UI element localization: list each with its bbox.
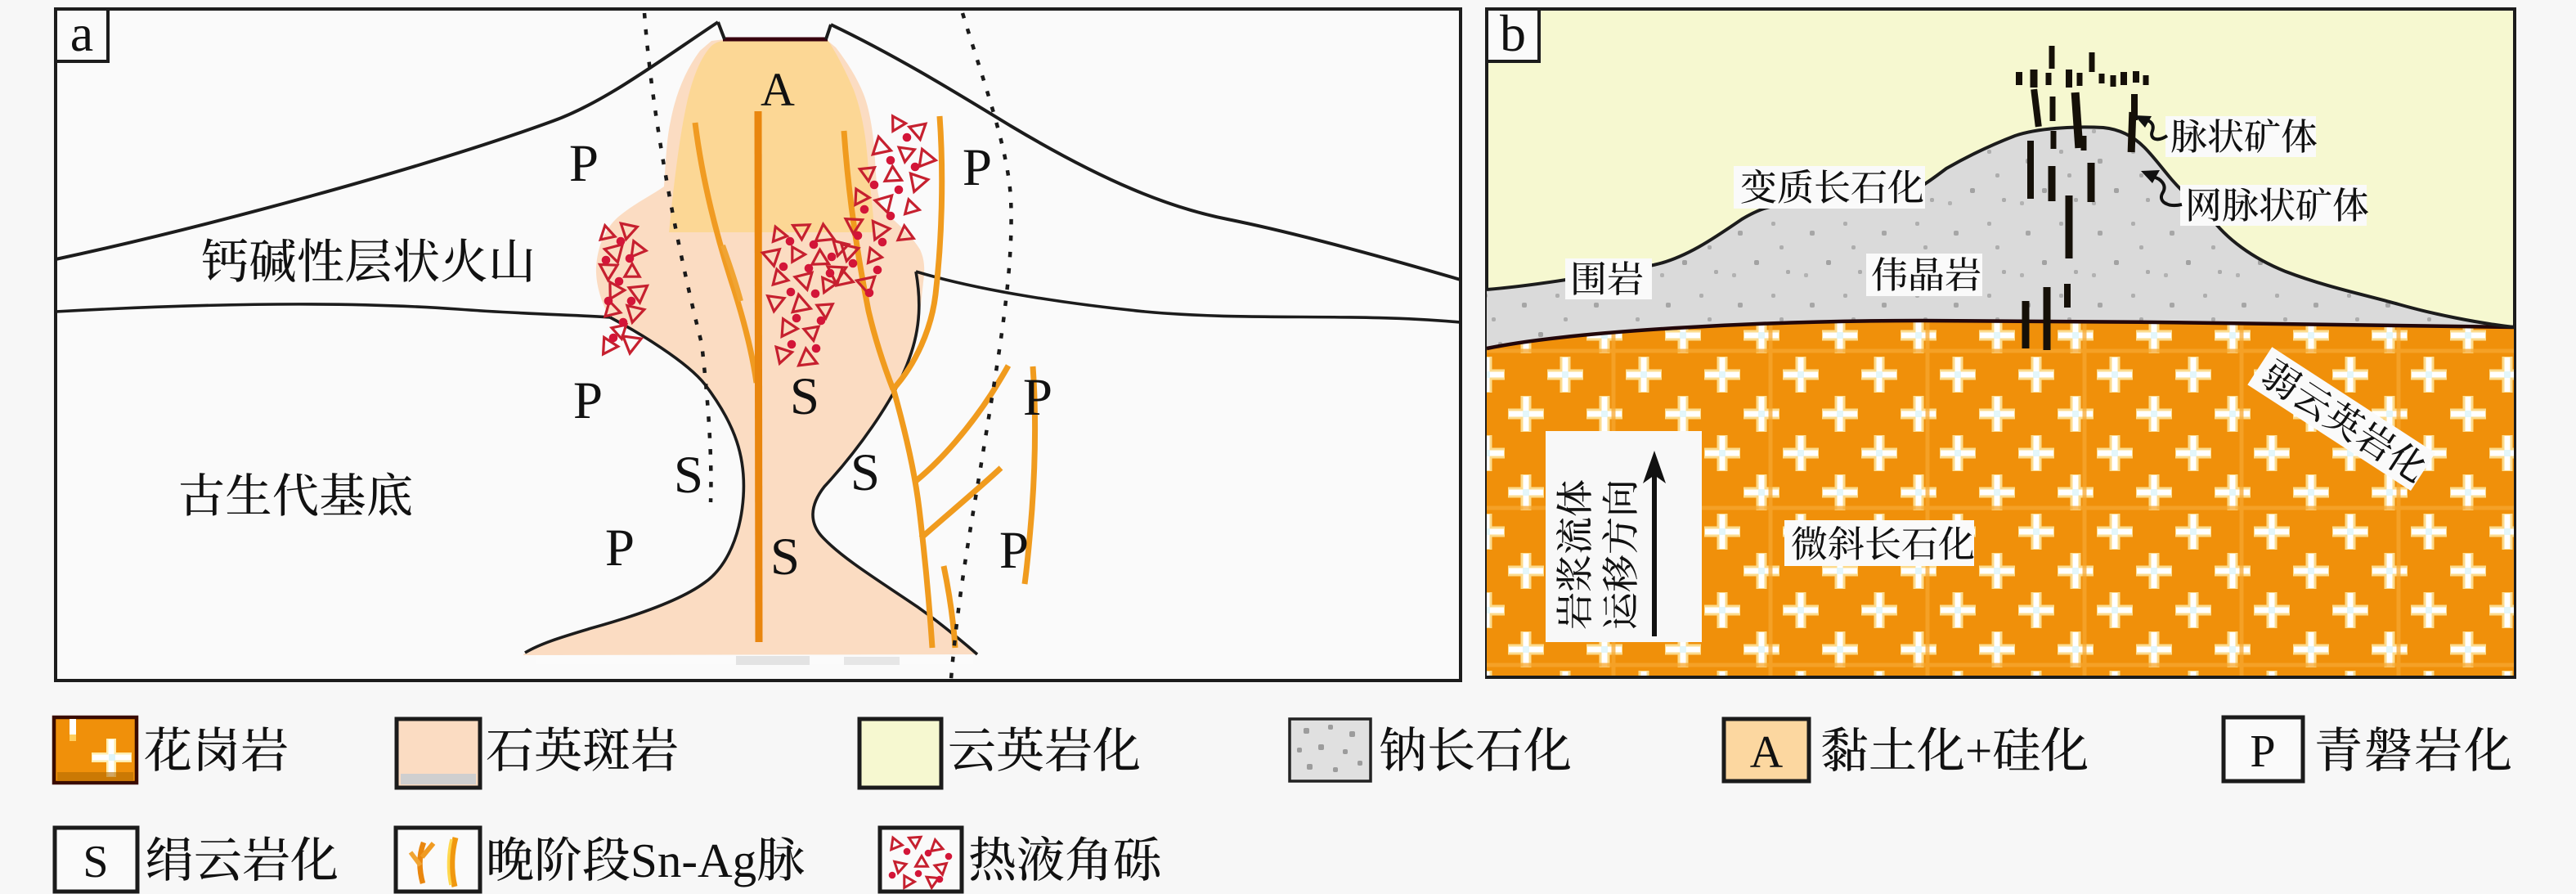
svg-text:S: S (770, 528, 800, 586)
svg-text:岩浆流体: 岩浆流体 (1555, 479, 1596, 630)
svg-text:花岗岩: 花岗岩 (144, 724, 289, 778)
svg-text:P: P (1023, 368, 1052, 427)
svg-text:b: b (1500, 4, 1526, 62)
svg-text:A: A (761, 63, 795, 116)
svg-text:P: P (963, 138, 992, 197)
svg-text:微斜长石化: 微斜长石化 (1791, 524, 1975, 565)
svg-text:a: a (70, 4, 93, 62)
svg-text:围岩: 围岩 (1570, 259, 1644, 300)
svg-text:S: S (83, 837, 108, 887)
svg-text:P: P (2250, 726, 2275, 777)
svg-text:青磐岩化: 青磐岩化 (2314, 724, 2514, 778)
svg-text:钠长石化: 钠长石化 (1379, 724, 1572, 778)
svg-text:S: S (850, 443, 880, 502)
svg-text:S: S (790, 367, 819, 426)
svg-text:热液角砾: 热液角砾 (968, 833, 1161, 887)
svg-text:晚阶段Sn-Ag脉: 晚阶段Sn-Ag脉 (486, 833, 805, 887)
svg-text:A: A (1750, 727, 1784, 778)
svg-text:P: P (999, 521, 1029, 580)
svg-text:伟晶岩: 伟晶岩 (1871, 255, 1981, 296)
svg-text:P: P (569, 134, 599, 193)
svg-text:钙碱性层状火山: 钙碱性层状火山 (201, 236, 536, 289)
svg-text:石英斑岩: 石英斑岩 (486, 724, 679, 778)
svg-text:脉状矿体: 脉状矿体 (2170, 117, 2318, 158)
svg-text:P: P (605, 519, 635, 577)
svg-text:S: S (674, 446, 703, 505)
svg-text:P: P (573, 371, 603, 430)
svg-text:黏土化+硅化: 黏土化+硅化 (1820, 724, 2089, 778)
svg-text:变质长石化: 变质长石化 (1740, 168, 1924, 209)
svg-text:网脉状矿体: 网脉状矿体 (2185, 186, 2369, 227)
svg-text:古生代基底: 古生代基底 (178, 471, 414, 523)
svg-text:云英岩化: 云英岩化 (948, 724, 1141, 778)
svg-text:绢云岩化: 绢云岩化 (146, 833, 339, 887)
svg-text:运移方向: 运移方向 (1600, 479, 1642, 630)
